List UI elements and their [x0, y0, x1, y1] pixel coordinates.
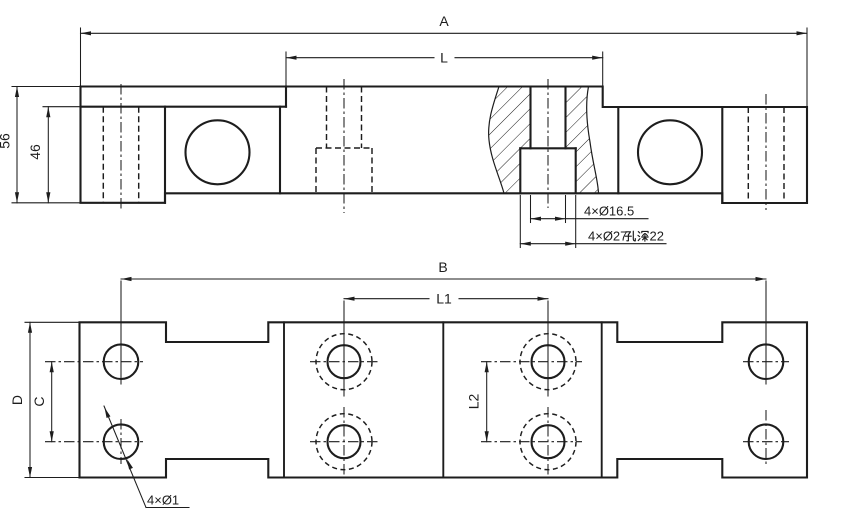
plan-view: B L1 D C [9, 259, 807, 508]
dim-label-C: C [31, 396, 47, 406]
right-web-bore-circle [638, 120, 702, 184]
annotation-through-hole: 4×Ø16.5 [584, 204, 634, 219]
dim-label-D: D [9, 395, 25, 405]
right-block-hidden-hole [748, 94, 784, 210]
technical-drawing: A L 56 46 [0, 0, 851, 529]
dim-label-56: 56 [0, 133, 13, 149]
section-hatch [489, 87, 599, 194]
drawing-canvas: A L 56 46 [0, 0, 851, 529]
counterbored-holes [316, 334, 576, 470]
annotation-counterbore-cjk-glyphs [625, 231, 648, 241]
dim-label-L1: L1 [436, 291, 452, 307]
dim-L: L [286, 50, 603, 86]
annotation-corner-holes: 4×Ø1 [147, 493, 179, 508]
dim-label-46: 46 [27, 144, 43, 160]
side-outline [81, 87, 808, 204]
dim-L1: L1 [344, 291, 548, 397]
leader-corner-holes: 4×Ø1 [103, 406, 189, 508]
dim-label-A: A [439, 13, 449, 29]
left-block-hidden-hole [103, 84, 138, 210]
side-view: A L 56 46 [0, 13, 807, 248]
annotation-counterbore-prefix: 4×Ø27 [588, 229, 627, 244]
dim-46: 46 [27, 107, 81, 203]
dim-label-B: B [438, 259, 447, 275]
dim-label-L: L [440, 50, 448, 66]
dim-L2: L2 [466, 362, 489, 442]
dim-C: C [31, 362, 54, 442]
dim-label-L2: L2 [466, 394, 482, 410]
left-web-bore-circle [186, 120, 250, 184]
annotation-counterbore-suffix: 22 [650, 229, 664, 244]
